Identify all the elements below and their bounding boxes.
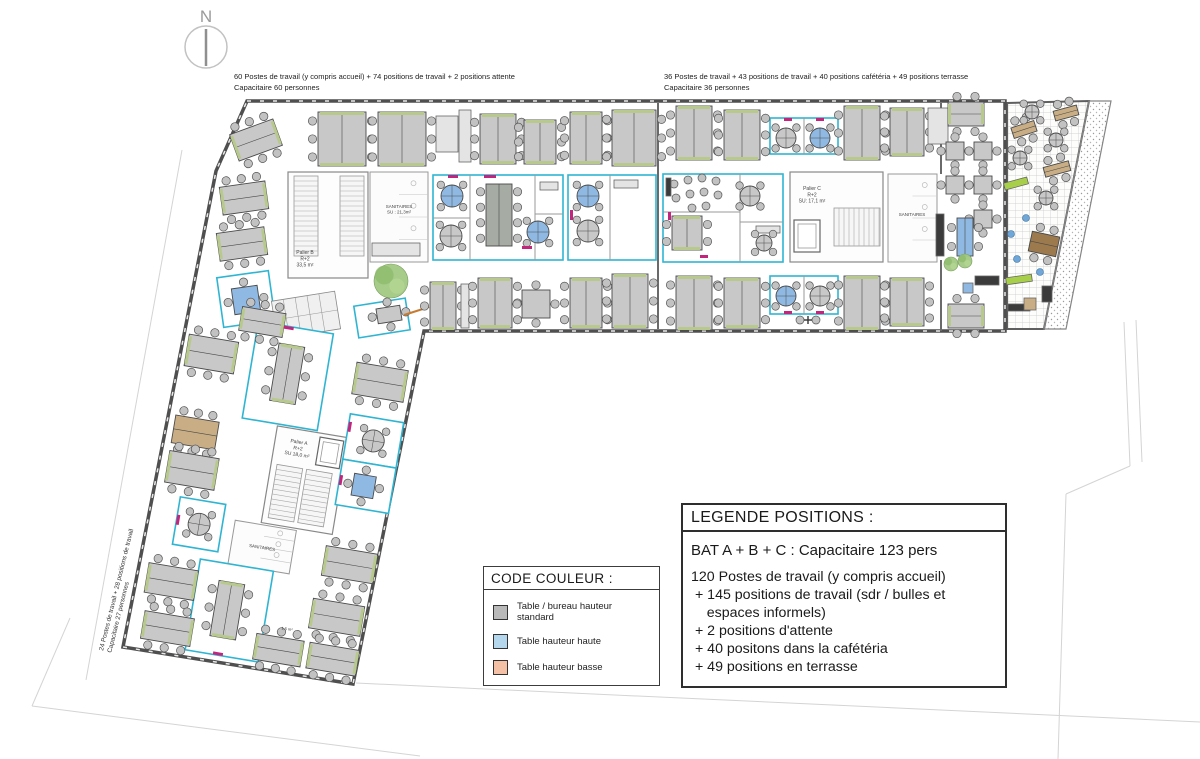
legend-item-standard: Table / bureau hauteur standard: [493, 601, 650, 623]
positions-line: espaces informels): [691, 604, 997, 622]
color-code-legend: CODE COULEUR : Table / bureau hauteur st…: [483, 566, 660, 686]
positions-line: + 40 positons dans la cafétéria: [691, 640, 997, 658]
positions-legend-lines: 120 Postes de travail (y compris accueil…: [691, 568, 997, 676]
positions-line: + 2 positions d'attente: [691, 622, 997, 640]
svg-text:SANITAIRESSU : 21,3m²: SANITAIRESSU : 21,3m²: [386, 204, 412, 215]
legend-item-label: Table hauteur haute: [517, 636, 601, 647]
bat-c-annotation: 36 Postes de travail + 43 positions de t…: [664, 72, 968, 93]
positions-line: 120 Postes de travail (y compris accueil…: [691, 568, 997, 586]
positions-legend-subtitle: BAT A + B + C : Capacitaire 123 pers: [691, 542, 997, 559]
legend-item-high: Table hauteur haute: [493, 634, 650, 649]
positions-line: + 49 positions en terrasse: [691, 658, 997, 676]
low-table-swatch: [493, 660, 508, 675]
bat-b-annotation-line2: Capacitaire 60 personnes: [234, 83, 515, 94]
positions-legend: LEGENDE POSITIONS : BAT A + B + C : Capa…: [681, 503, 1007, 688]
bat-b-annotation: 60 Postes de travail (y compris accueil)…: [234, 72, 515, 93]
standard-table-swatch: [493, 605, 508, 620]
legend-item-label: Table / bureau hauteur standard: [517, 601, 650, 623]
floor-plan-page: Palier BR+233,5 m²SANITAIRESSU : 21,3m²P…: [0, 0, 1200, 759]
high-table-swatch: [493, 634, 508, 649]
legend-item-low: Table hauteur basse: [493, 660, 650, 675]
positions-line: + 145 positions de travail (sdr / bulles…: [691, 586, 997, 604]
bat-b-annotation-line1: 60 Postes de travail (y compris accueil)…: [234, 72, 515, 83]
bat-c-annotation-line2: Capacitaire 36 personnes: [664, 83, 968, 94]
legend-item-label: Table hauteur basse: [517, 662, 603, 673]
color-code-legend-title: CODE COULEUR :: [484, 567, 659, 590]
bat-c-annotation-line1: 36 Postes de travail + 43 positions de t…: [664, 72, 968, 83]
svg-text:SANITAIRES: SANITAIRES: [899, 212, 925, 217]
positions-legend-title: LEGENDE POSITIONS :: [683, 505, 1005, 532]
